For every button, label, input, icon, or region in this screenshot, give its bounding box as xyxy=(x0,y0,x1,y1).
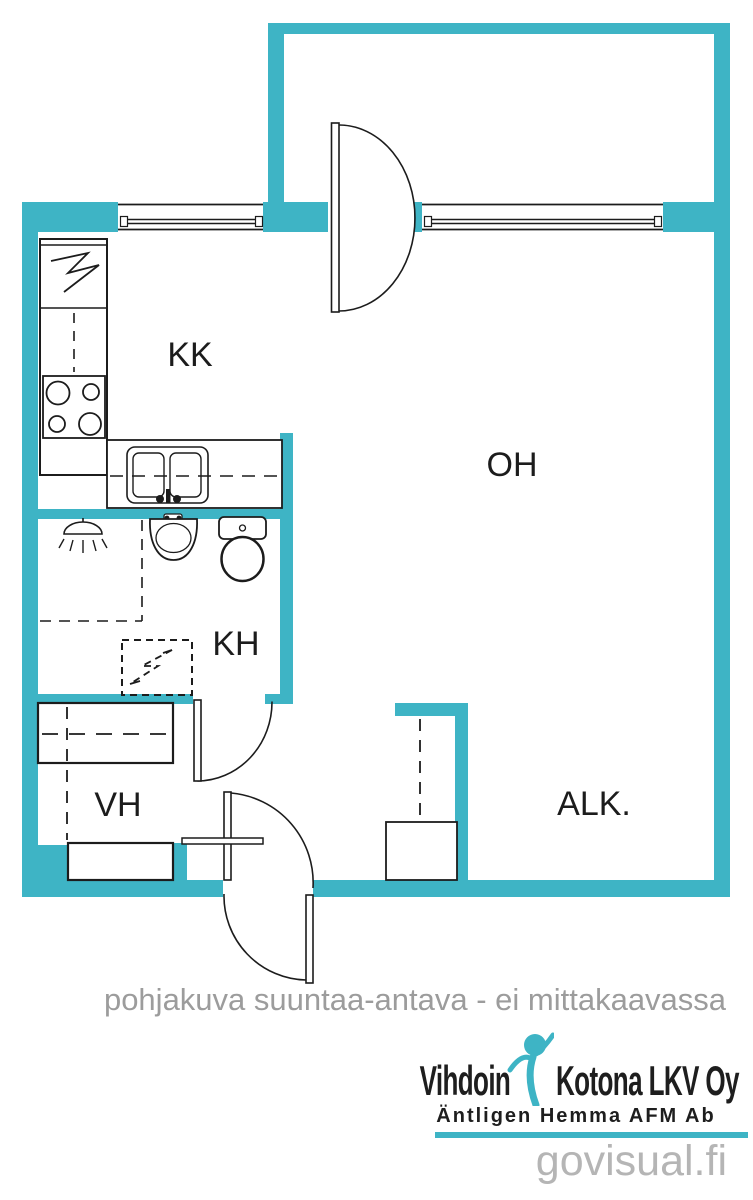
kitchen-fixtures xyxy=(40,239,282,508)
room-label-oh: OH xyxy=(487,448,538,482)
washing-machine-icon xyxy=(122,640,192,695)
balcony-door-leaf xyxy=(332,123,340,312)
bathroom-door xyxy=(194,700,272,781)
entry-closet-door-leaf xyxy=(182,838,263,844)
room-label-alk: ALK. xyxy=(557,787,631,821)
room-label-vh: VH xyxy=(94,788,141,822)
wardrobe-bottom xyxy=(68,843,173,880)
balcony-door xyxy=(332,123,415,312)
wall-corner-block xyxy=(22,845,68,897)
wardrobe-top xyxy=(38,703,173,763)
room-label-kk: KK xyxy=(167,338,212,372)
kitchen-window xyxy=(118,203,263,231)
front-door-leaf-inner xyxy=(224,792,231,880)
logo-figure-icon xyxy=(506,1028,554,1106)
balcony-rail xyxy=(268,23,714,34)
alcove-cabinet xyxy=(386,822,457,880)
floor-plan-page: KK OH KH VH ALK. pohjakuva suuntaa-antav… xyxy=(0,0,753,1200)
wall-bottom-right xyxy=(313,880,730,897)
logo-tagline: Äntligen Hemma AFM Ab xyxy=(435,1106,717,1126)
bathroom-fixtures xyxy=(40,514,266,695)
balcony-wall-left xyxy=(268,23,284,202)
living-room-window xyxy=(422,203,663,231)
wall-entry-stub xyxy=(174,843,187,881)
disclaimer-text: pohjakuva suuntaa-antava - ei mittakaava… xyxy=(104,984,726,1015)
wall-top-a xyxy=(22,202,118,232)
wall-right xyxy=(714,23,730,897)
watermark-text: govisual.fi xyxy=(536,1140,727,1183)
bathroom-door-leaf xyxy=(194,700,201,781)
kitchen-sink-icon xyxy=(107,440,282,508)
wall-top-b xyxy=(263,202,328,232)
front-door-leaf-outer xyxy=(306,895,313,983)
alcove-fixtures xyxy=(386,719,457,880)
washbasin-icon xyxy=(150,514,197,560)
logo-name-right: Kotona LKV Oy xyxy=(556,1060,739,1102)
toilet-icon xyxy=(219,517,266,581)
stove-icon xyxy=(43,376,105,438)
shower-icon xyxy=(59,518,107,553)
room-label-kh: KH xyxy=(212,627,259,661)
logo-name-left: Vihdoin xyxy=(419,1060,510,1102)
wall-left xyxy=(22,202,38,897)
wall-kh-door-stub xyxy=(265,694,293,704)
floor-plan-drawing xyxy=(0,0,753,1200)
